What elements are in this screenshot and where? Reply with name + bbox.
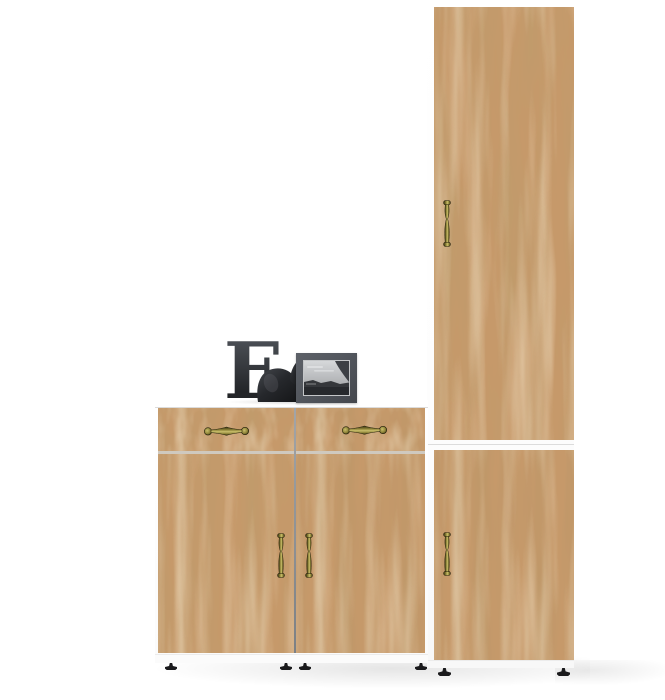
drawer-right-handle [342, 424, 387, 436]
chest-door-left [158, 454, 294, 653]
tall-cabinet-upper-door [434, 7, 574, 440]
tall-cabinet-base-line [427, 660, 574, 661]
chest-right-door-handle [304, 533, 314, 578]
tall-cabinet-lower-door [434, 450, 574, 660]
furniture-scene: E [0, 0, 665, 700]
photo-frame [296, 353, 357, 403]
drawer-left-handle [204, 425, 249, 437]
chest-door-right [296, 454, 425, 653]
tall-upper-door-handle [442, 200, 452, 247]
seascape-photo [304, 361, 349, 395]
chest-base-line [155, 654, 428, 655]
tall-cabinet [427, 0, 574, 668]
center-door-gap [294, 408, 296, 653]
tall-lower-door-handle [442, 532, 452, 576]
chest-left-door-handle [276, 533, 286, 578]
tall-cabinet-divider [427, 444, 574, 445]
chest-of-drawers [155, 400, 428, 663]
